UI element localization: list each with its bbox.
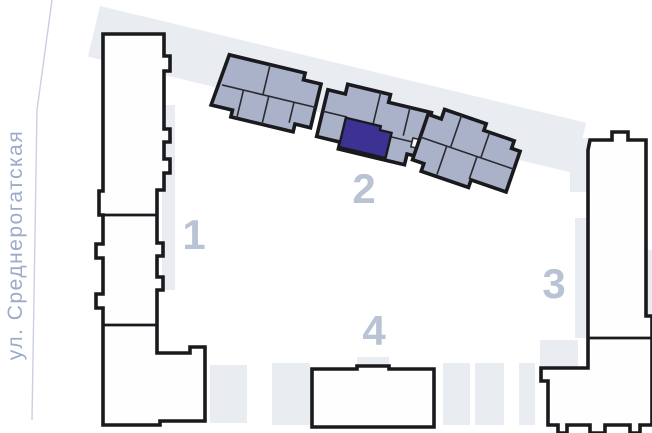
site-plan: 1 2 3 4 ул. Среднерогатская bbox=[0, 0, 652, 433]
building-4-label: 4 bbox=[362, 307, 386, 354]
shadow-bottom-3 bbox=[443, 363, 470, 425]
shadow-3-left bbox=[575, 218, 588, 338]
street-edge-line bbox=[32, 0, 52, 420]
building-1-label: 1 bbox=[182, 211, 205, 258]
building-4-shape[interactable] bbox=[312, 366, 434, 427]
shadow-bottom-1 bbox=[210, 365, 247, 423]
shadow-3-top bbox=[570, 138, 588, 192]
site-plan-canvas: 1 2 3 4 ул. Среднерогатская bbox=[0, 0, 652, 433]
shadow-bottom-2 bbox=[272, 363, 310, 425]
shadow-bottom-4 bbox=[475, 363, 504, 425]
building-2-label: 2 bbox=[352, 165, 375, 212]
building-3-label: 3 bbox=[542, 260, 565, 307]
shadow-bottom-5 bbox=[519, 363, 535, 425]
shadow-bottom-6 bbox=[540, 340, 578, 368]
street-label: ул. Среднерогатская bbox=[4, 130, 27, 360]
